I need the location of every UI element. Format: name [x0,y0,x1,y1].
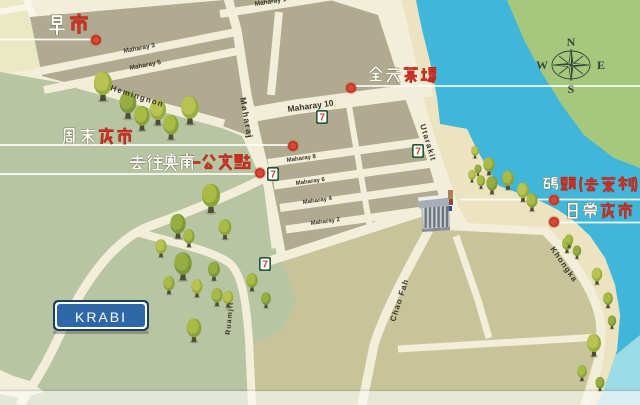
svg-text:S: S [568,82,575,96]
svg-text:E: E [597,58,605,72]
svg-text:N: N [567,35,576,49]
svg-text:KRABI: KRABI [75,309,127,325]
svg-text:W: W [536,58,548,72]
